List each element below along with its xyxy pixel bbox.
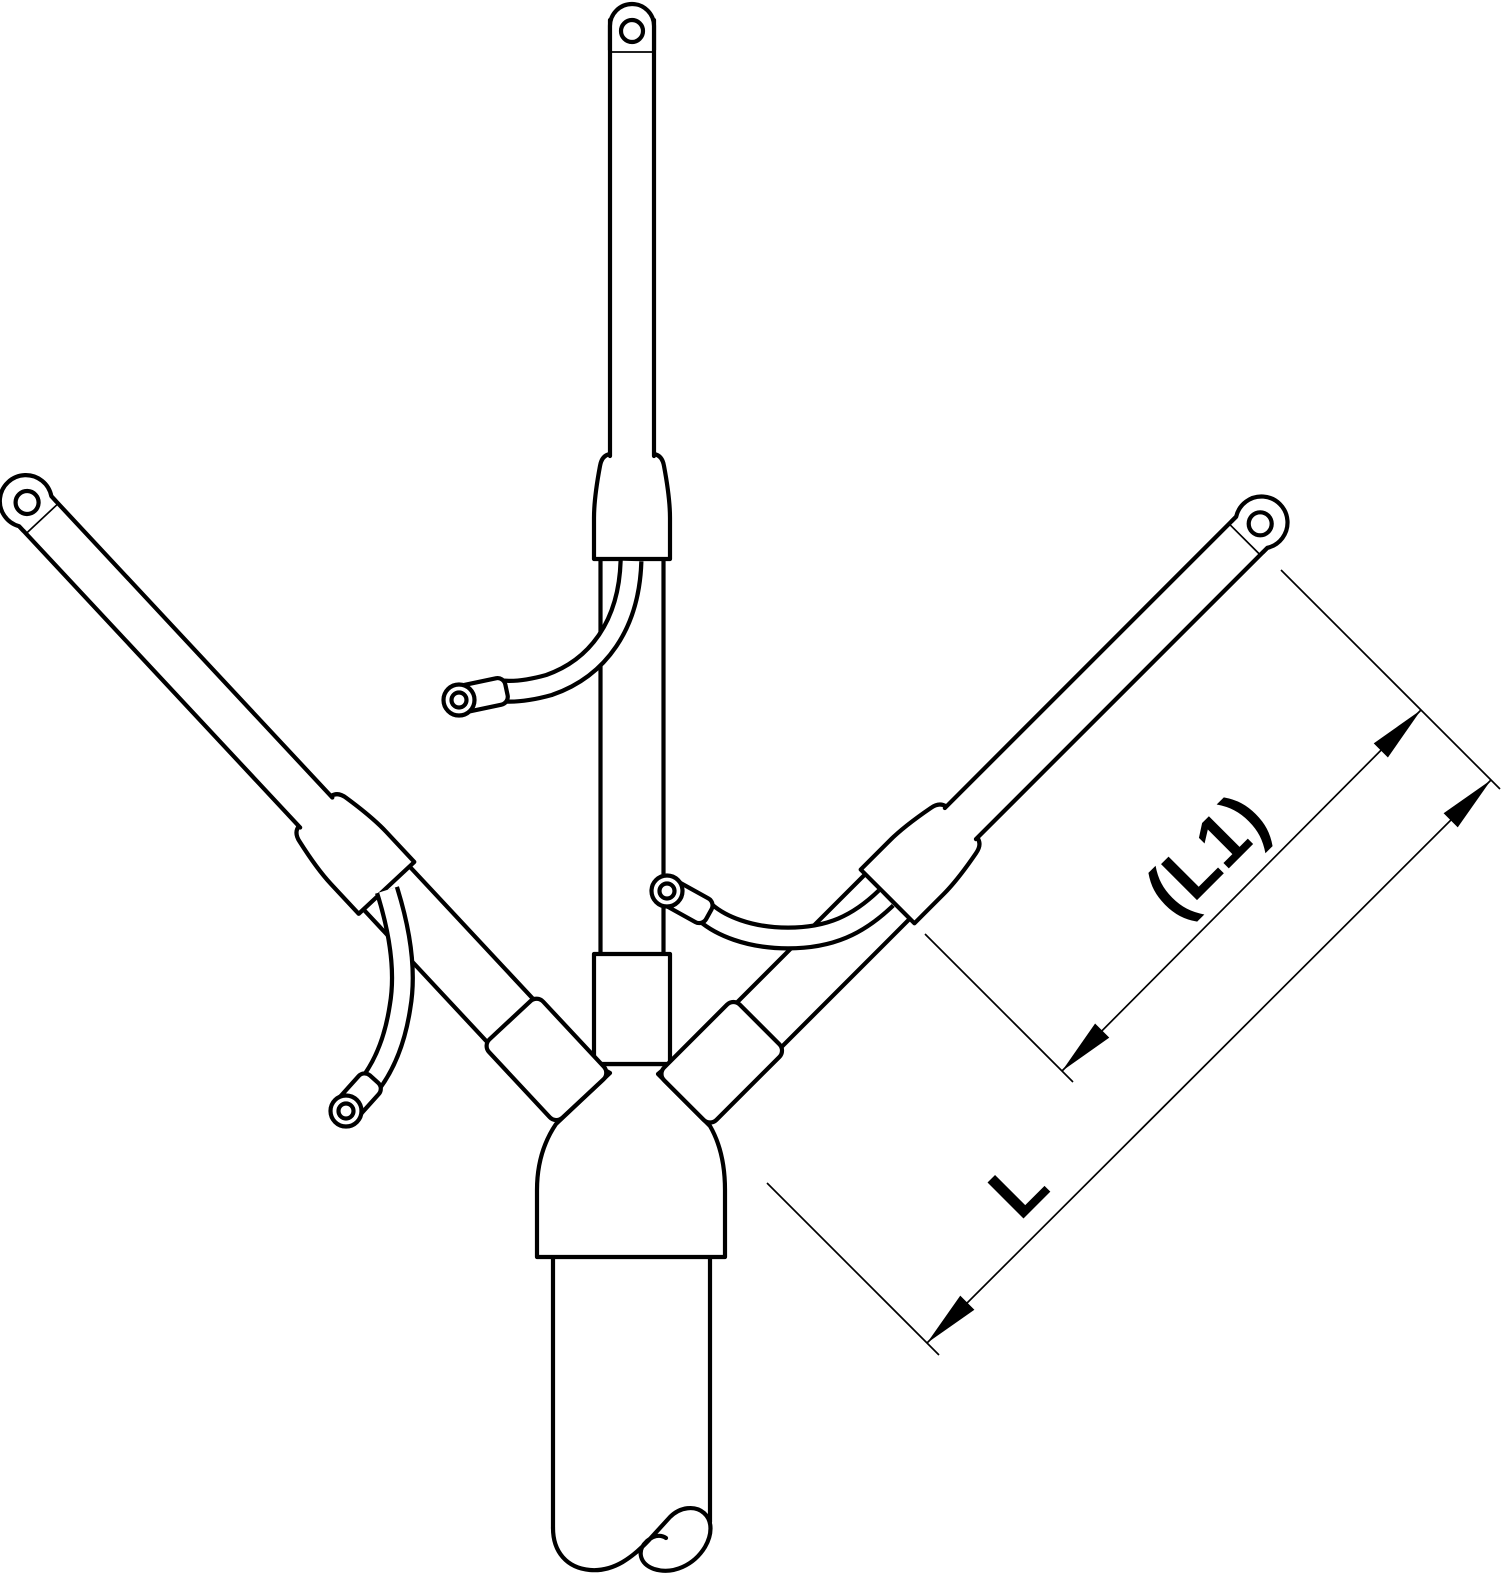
center-lug-shaft-fill (610, 42, 654, 457)
earth-lug-hole (660, 884, 675, 899)
center-termination-boot (594, 454, 670, 559)
diagram-canvas: (L1) L (0, 0, 1504, 1578)
background (0, 0, 1504, 1578)
cable-termination-diagram: (L1) L (0, 0, 1504, 1578)
center-lug-hole (621, 20, 643, 42)
center-collar-sleeve (594, 954, 670, 1064)
earth-lug-hole (452, 693, 467, 708)
earth-lug-hole (339, 1104, 354, 1119)
